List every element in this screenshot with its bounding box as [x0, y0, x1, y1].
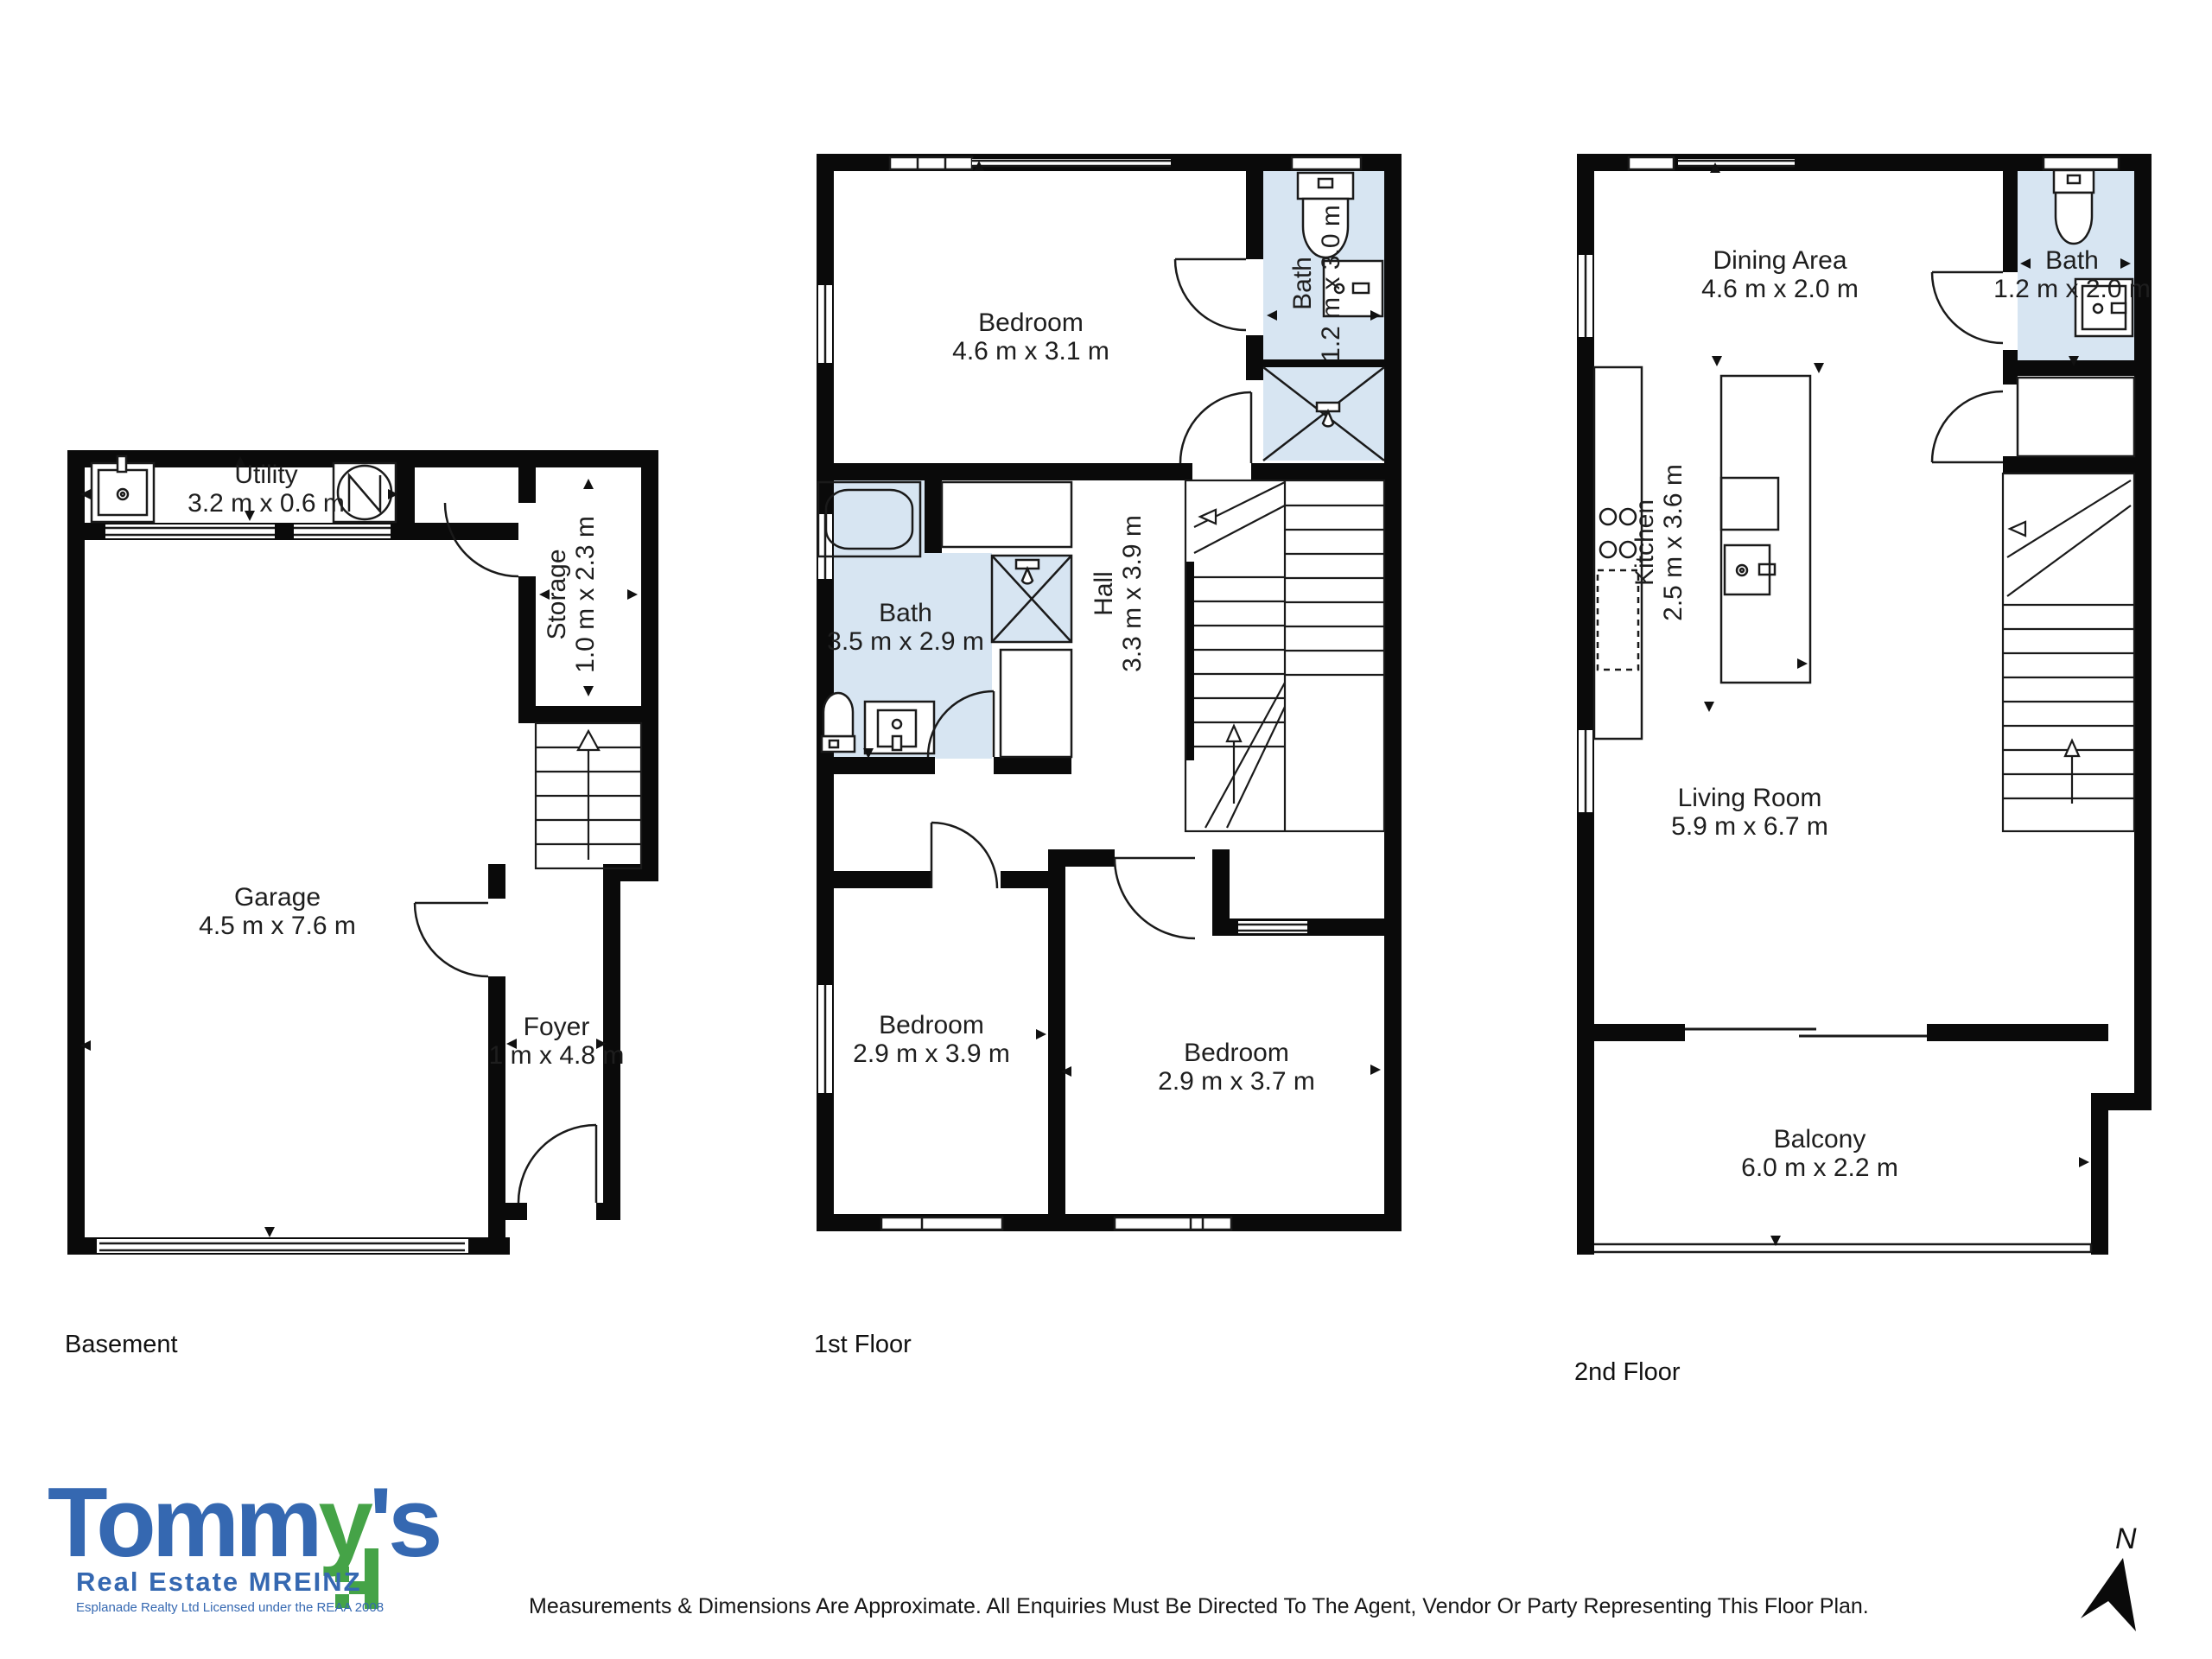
room-label-storage: Storage 1.0 m x 2.3 m: [543, 516, 600, 673]
agency-logo: Tommy's Real Estate MREINZ Esplanade Rea…: [48, 1469, 531, 1633]
north-label: N: [2115, 1522, 2137, 1556]
sink-icon: [1725, 545, 1775, 594]
toilet-icon: [822, 693, 855, 752]
room-label-living: Living Room 5.9 m x 6.7 m: [1671, 784, 1828, 841]
room-label-balcony: Balcony 6.0 m x 2.2 m: [1741, 1125, 1898, 1182]
room-label-kitchen: Kitchen 2.5 m x 3.6 m: [1630, 464, 1688, 621]
balcony-railing: [1594, 1244, 2091, 1252]
room-label-garage: Garage 4.5 m x 7.6 m: [199, 883, 356, 940]
logo-green-y: y: [319, 1468, 369, 1578]
stairs-icon: [2003, 474, 2134, 831]
room-label-bath-main: Bath 3.5 m x 2.9 m: [827, 599, 984, 656]
north-arrow-icon: N: [2074, 1521, 2169, 1650]
room-label-bedroom-3: Bedroom 2.9 m x 3.7 m: [1158, 1039, 1315, 1096]
room-label-utility: Utility 3.2 m x 0.6 m: [188, 461, 345, 518]
toilet-icon: [2054, 170, 2094, 244]
sink-icon: [865, 702, 934, 753]
sliding-door: [1685, 1029, 1927, 1036]
room-label-dining: Dining Area 4.6 m x 2.0 m: [1701, 246, 1859, 303]
room-label-bedroom-2: Bedroom 2.9 m x 3.9 m: [853, 1011, 1010, 1068]
room-label-bath-upper: Bath 1.2 m x 3.0 m: [1288, 205, 1345, 362]
floorplan-page: { "floors": [ { "label": "Basement", "ro…: [0, 0, 2212, 1659]
window: [105, 524, 391, 538]
door-arc: [518, 1125, 596, 1203]
second-floor-plan: [1577, 154, 2152, 1255]
room-label-bedroom-1: Bedroom 4.6 m x 3.1 m: [952, 308, 1109, 365]
door-arc: [415, 903, 488, 976]
stairs-icon: [1185, 480, 1384, 831]
floor-label-first: 1st Floor: [814, 1331, 912, 1359]
garage-door: [97, 1239, 468, 1253]
floor-label-basement: Basement: [65, 1331, 178, 1359]
stairs-icon: [536, 723, 641, 868]
logo-license: Esplanade Realty Ltd Licensed under the …: [76, 1600, 384, 1615]
closet: [1001, 650, 1071, 757]
room-label-foyer: Foyer 1 m x 4.8 m: [489, 1013, 625, 1070]
logo-wordmark: Tommy's: [48, 1474, 438, 1573]
closet: [942, 482, 1071, 547]
kitchen-island: [1721, 376, 1810, 683]
floor-label-second: 2nd Floor: [1574, 1358, 1681, 1387]
disclaimer-text: Measurements & Dimensions Are Approximat…: [529, 1594, 1869, 1619]
door-arc: [1932, 272, 2003, 462]
floorplan-graphic: [0, 0, 2212, 1659]
room-label-bath-2f: Bath 1.2 m x 2.0 m: [1993, 246, 2151, 303]
window: [1238, 921, 1307, 933]
logo-tagline: Real Estate MREINZ: [76, 1567, 362, 1598]
room-label-hall: Hall 3.3 m x 3.9 m: [1090, 515, 1147, 672]
sink-icon: [92, 456, 154, 522]
closet: [2018, 378, 2134, 456]
